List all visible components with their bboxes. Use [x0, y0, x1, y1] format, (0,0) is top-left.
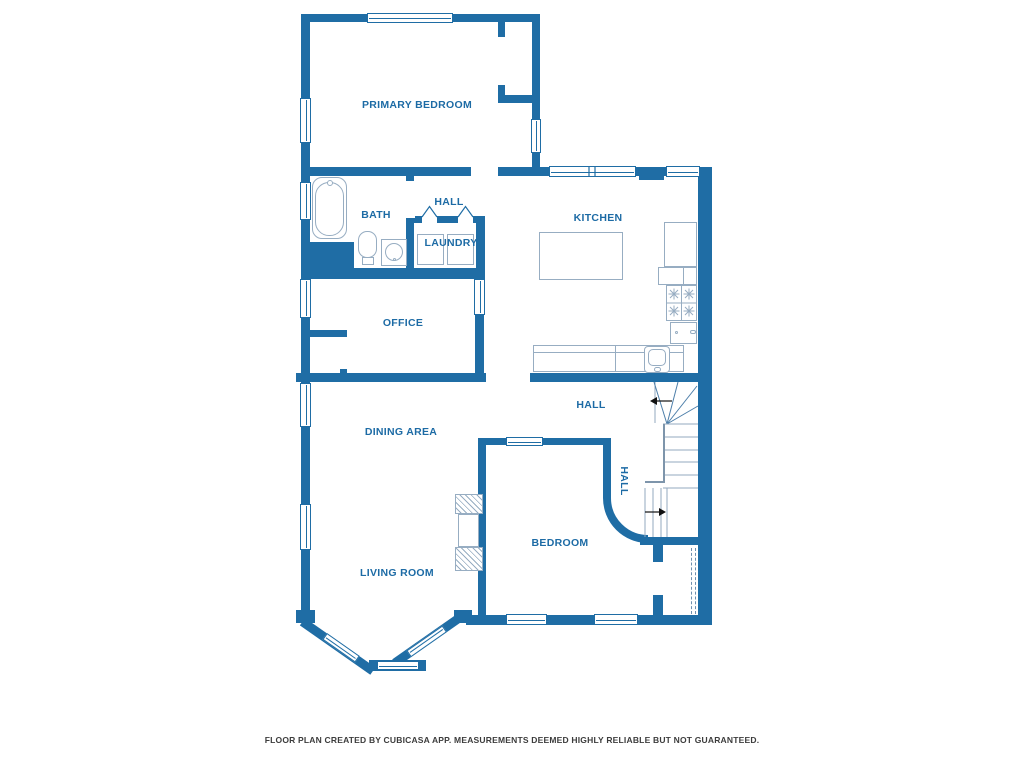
room-label-kitchen: KITCHEN [574, 212, 623, 224]
room-label-primary-bedroom: PRIMARY BEDROOM [362, 99, 472, 111]
room-label-hall-upper: HALL [434, 196, 463, 208]
stair-treads [663, 424, 698, 488]
stair-winder-lines [654, 382, 698, 424]
room-label-hall-stair: HALL [618, 466, 630, 495]
stove [667, 286, 697, 321]
line-art-overlay [0, 0, 1024, 768]
room-label-office: OFFICE [383, 317, 423, 329]
door-swing-marks [422, 207, 473, 218]
room-label-bedroom: BEDROOM [532, 537, 589, 549]
staircase [645, 382, 698, 537]
room-label-hall-mid: HALL [576, 399, 605, 411]
floor-plan-canvas: PRIMARY BEDROOM HALL BATH LAUNDRY KITCHE… [0, 0, 1024, 768]
stair-handrail [645, 424, 664, 482]
room-label-living-room: LIVING ROOM [360, 567, 434, 579]
stair-arrow-up [645, 508, 666, 516]
disclaimer-text: FLOOR PLAN CREATED BY CUBICASA APP. MEAS… [0, 735, 1024, 745]
room-label-dining-area: DINING AREA [365, 426, 437, 438]
room-label-bath: BATH [361, 209, 391, 221]
window-mullions [589, 167, 595, 176]
room-label-laundry: LAUNDRY [424, 237, 477, 249]
